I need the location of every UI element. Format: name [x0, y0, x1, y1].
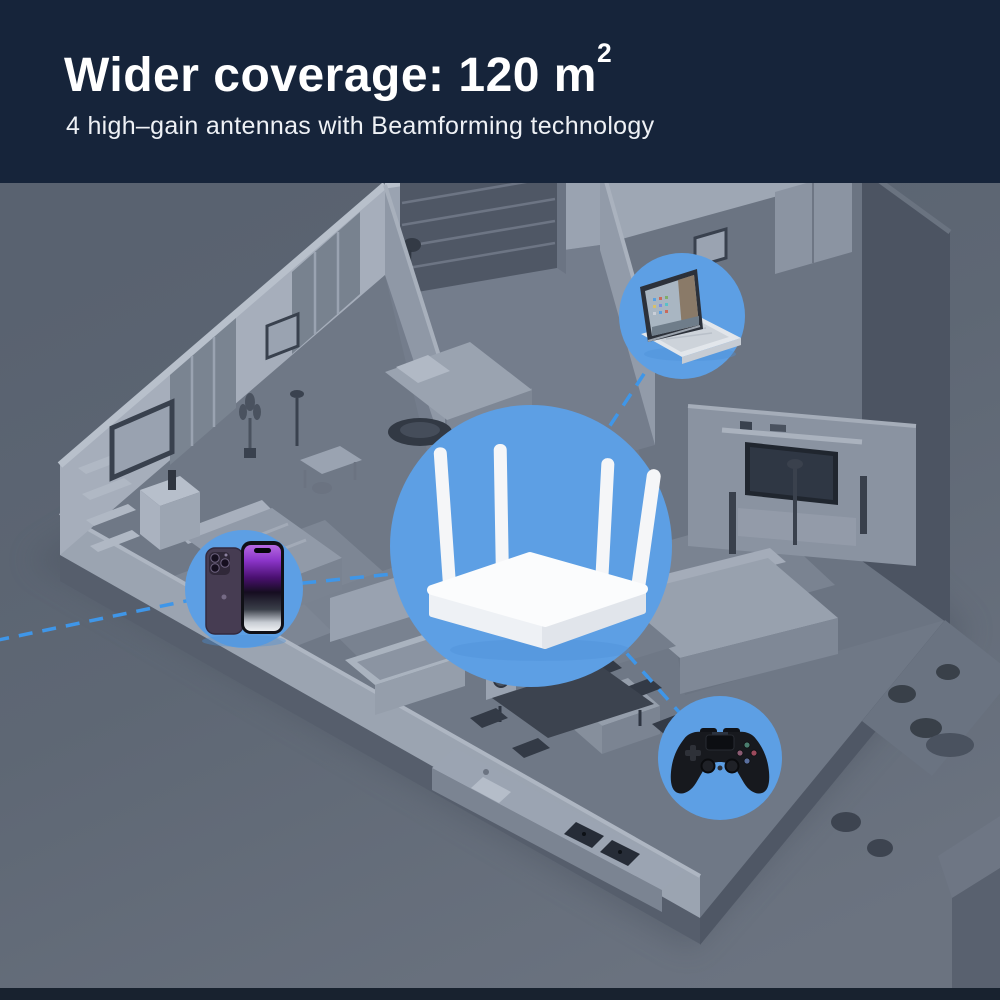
- router-hotspot: [390, 405, 672, 687]
- page-title: Wider coverage: 120 m2: [64, 42, 612, 109]
- title-text: Wider coverage: 120 m: [64, 49, 597, 102]
- floorplan-scene: [0, 183, 1000, 988]
- game-controller-icon: [658, 696, 782, 820]
- title-superscript: 2: [597, 38, 612, 68]
- subtitle: 4 high–gain antennas with Beamforming te…: [66, 112, 654, 141]
- smartphone-icon: [185, 530, 303, 648]
- phone-front: [241, 541, 284, 634]
- phone-back: [206, 548, 243, 634]
- game-controller-hotspot: [658, 696, 782, 820]
- smartphone-hotspot: [185, 530, 303, 648]
- bottom-strip: [0, 988, 1000, 1000]
- laptop-hotspot: [619, 253, 745, 379]
- laptop-icon: [619, 253, 745, 379]
- header: Wider coverage: 120 m2 4 high–gain anten…: [0, 0, 1000, 183]
- wifi-router-icon: [390, 405, 672, 687]
- product-banner: Wider coverage: 120 m2 4 high–gain anten…: [0, 0, 1000, 1000]
